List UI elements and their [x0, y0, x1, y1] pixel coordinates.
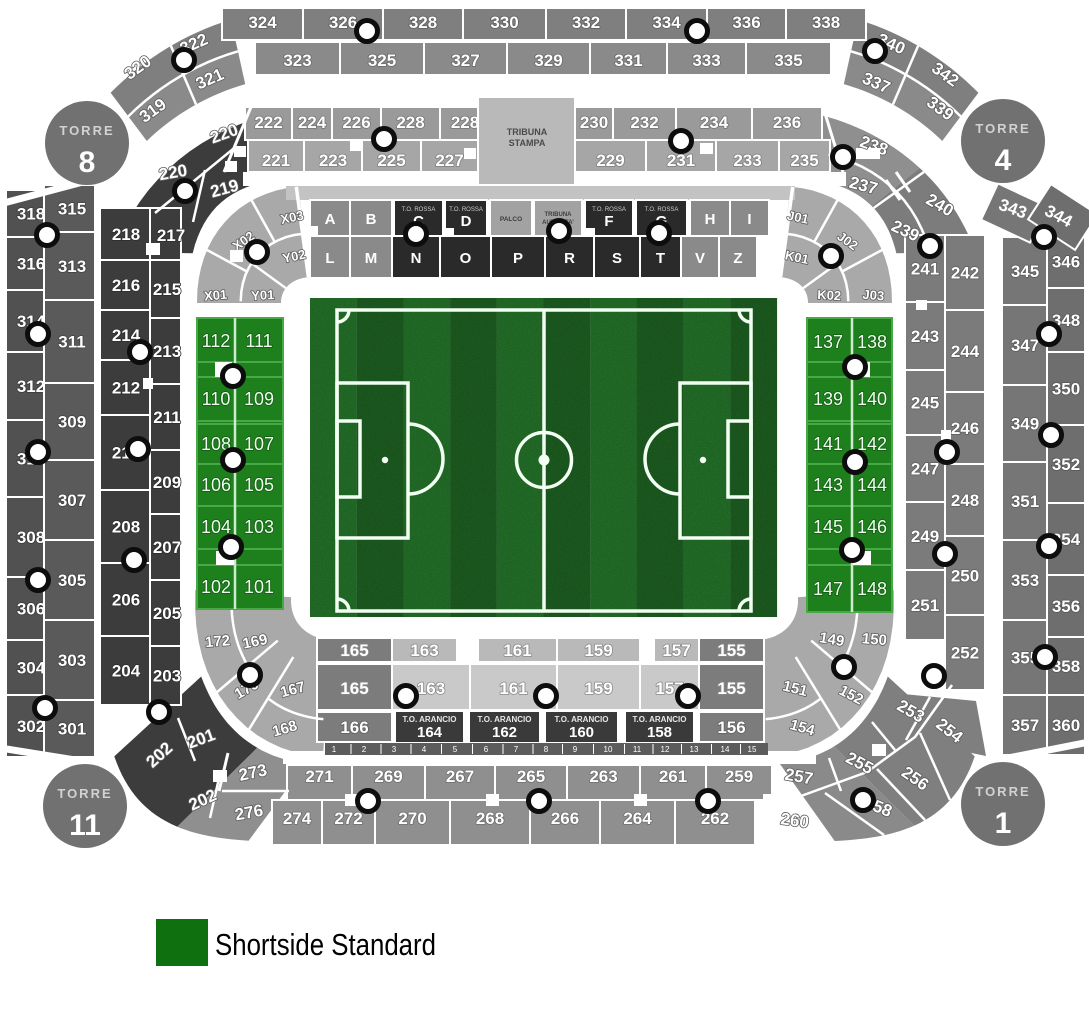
svg-text:269: 269	[374, 767, 402, 786]
svg-text:259: 259	[725, 767, 753, 786]
svg-text:5: 5	[453, 745, 458, 754]
svg-text:260: 260	[779, 809, 810, 832]
svg-text:164: 164	[417, 724, 443, 741]
svg-text:O: O	[460, 250, 472, 267]
svg-text:4: 4	[995, 144, 1012, 177]
svg-text:315: 315	[58, 200, 86, 219]
svg-text:235: 235	[790, 151, 818, 170]
svg-text:161: 161	[503, 641, 531, 660]
svg-text:347: 347	[1011, 336, 1039, 355]
svg-text:105: 105	[244, 475, 274, 495]
svg-text:111: 111	[245, 331, 272, 351]
svg-text:274: 274	[283, 809, 312, 828]
svg-text:103: 103	[244, 517, 274, 537]
svg-text:14: 14	[721, 745, 730, 754]
svg-text:230: 230	[580, 113, 608, 132]
svg-text:345: 345	[1011, 262, 1039, 281]
svg-text:144: 144	[857, 475, 887, 495]
svg-text:223: 223	[319, 151, 347, 170]
svg-text:306: 306	[17, 600, 45, 619]
svg-text:312: 312	[17, 377, 45, 396]
svg-text:243: 243	[911, 327, 939, 346]
svg-text:TRIBUNA: TRIBUNA	[507, 127, 548, 137]
svg-text:308: 308	[17, 528, 45, 547]
svg-text:301: 301	[58, 720, 86, 739]
svg-text:207: 207	[153, 538, 181, 557]
svg-text:251: 251	[911, 596, 939, 615]
svg-text:162: 162	[492, 724, 517, 741]
svg-text:206: 206	[112, 591, 140, 610]
svg-text:270: 270	[398, 809, 426, 828]
svg-text:226: 226	[342, 113, 370, 132]
svg-text:352: 352	[1052, 455, 1080, 474]
svg-text:138: 138	[857, 332, 887, 352]
svg-text:325: 325	[368, 51, 396, 70]
svg-text:9: 9	[573, 745, 578, 754]
svg-text:161: 161	[499, 679, 527, 698]
svg-text:Z: Z	[733, 250, 742, 267]
svg-text:233: 233	[733, 151, 761, 170]
svg-text:1: 1	[995, 807, 1012, 840]
svg-text:221: 221	[262, 151, 290, 170]
svg-text:TRIBUNA: TRIBUNA	[545, 212, 573, 218]
svg-text:215: 215	[153, 280, 181, 299]
svg-text:147: 147	[813, 579, 843, 599]
svg-text:247: 247	[911, 460, 939, 479]
svg-text:150: 150	[861, 630, 887, 649]
svg-text:B: B	[366, 211, 377, 228]
svg-text:244: 244	[951, 342, 980, 361]
svg-text:8: 8	[544, 745, 549, 754]
svg-text:11: 11	[69, 809, 101, 842]
svg-text:261: 261	[659, 767, 687, 786]
svg-text:2: 2	[362, 745, 367, 754]
svg-text:112: 112	[202, 331, 231, 351]
svg-text:248: 248	[951, 491, 979, 510]
svg-text:101: 101	[244, 577, 274, 597]
svg-text:205: 205	[153, 604, 181, 623]
svg-text:T.O. ARANCIO: T.O. ARANCIO	[478, 715, 532, 724]
svg-text:335: 335	[774, 51, 802, 70]
svg-text:350: 350	[1052, 380, 1080, 399]
svg-text:309: 309	[58, 413, 86, 432]
svg-text:V: V	[695, 250, 705, 267]
svg-text:12: 12	[661, 745, 670, 754]
svg-text:204: 204	[112, 662, 141, 681]
svg-text:106: 106	[201, 475, 231, 495]
svg-text:T.O. ARANCIO: T.O. ARANCIO	[555, 715, 609, 724]
svg-text:3: 3	[392, 745, 397, 754]
svg-text:267: 267	[446, 767, 474, 786]
svg-text:F: F	[604, 213, 613, 230]
svg-text:349: 349	[1011, 415, 1039, 434]
svg-text:208: 208	[112, 518, 140, 537]
svg-text:X01: X01	[203, 287, 227, 304]
svg-text:307: 307	[58, 491, 86, 510]
svg-text:360: 360	[1052, 716, 1080, 735]
svg-text:TORRE: TORRE	[59, 123, 114, 138]
svg-text:156: 156	[717, 718, 745, 737]
svg-text:357: 357	[1011, 716, 1039, 735]
svg-text:160: 160	[569, 724, 594, 741]
svg-text:T.O. ARANCIO: T.O. ARANCIO	[633, 715, 687, 724]
svg-text:163: 163	[410, 641, 438, 660]
svg-text:311: 311	[58, 333, 85, 352]
svg-text:13: 13	[690, 745, 699, 754]
svg-text:228: 228	[396, 113, 424, 132]
svg-text:246: 246	[951, 419, 979, 438]
svg-text:252: 252	[951, 644, 979, 663]
svg-text:327: 327	[451, 51, 479, 70]
svg-text:TORRE: TORRE	[975, 784, 1030, 799]
svg-text:236: 236	[773, 113, 801, 132]
svg-text:165: 165	[340, 679, 368, 698]
svg-text:329: 329	[534, 51, 562, 70]
svg-text:172: 172	[204, 632, 230, 651]
svg-text:250: 250	[951, 567, 979, 586]
svg-text:218: 218	[112, 225, 140, 244]
svg-text:159: 159	[584, 679, 612, 698]
svg-text:326: 326	[329, 13, 357, 32]
svg-text:11: 11	[633, 745, 642, 754]
svg-text:328: 328	[409, 13, 437, 32]
svg-text:212: 212	[112, 379, 140, 398]
svg-text:PALCO: PALCO	[500, 216, 522, 223]
svg-text:225: 225	[377, 151, 405, 170]
svg-text:232: 232	[630, 113, 658, 132]
svg-text:216: 216	[112, 276, 140, 295]
svg-text:163: 163	[417, 679, 445, 698]
svg-text:141: 141	[813, 434, 843, 454]
svg-text:330: 330	[490, 13, 518, 32]
svg-text:TORRE: TORRE	[975, 121, 1030, 136]
svg-text:140: 140	[857, 389, 887, 409]
svg-text:143: 143	[813, 475, 843, 495]
svg-text:H: H	[705, 211, 716, 228]
svg-text:217: 217	[157, 226, 185, 245]
svg-text:229: 229	[596, 151, 624, 170]
svg-text:324: 324	[248, 13, 277, 32]
svg-text:N: N	[411, 250, 422, 267]
svg-text:353: 353	[1011, 571, 1039, 590]
svg-text:336: 336	[732, 13, 760, 32]
svg-text:7: 7	[514, 745, 519, 754]
svg-text:249: 249	[911, 527, 939, 546]
svg-text:T: T	[656, 250, 665, 267]
svg-text:109: 109	[244, 389, 274, 409]
svg-text:304: 304	[17, 659, 46, 678]
svg-text:271: 271	[305, 767, 333, 786]
svg-text:228: 228	[451, 113, 479, 132]
svg-text:139: 139	[813, 389, 843, 409]
svg-text:R: R	[564, 250, 575, 267]
svg-text:332: 332	[572, 13, 600, 32]
svg-text:Shortside Standard: Shortside Standard	[215, 927, 436, 962]
svg-text:234: 234	[700, 113, 729, 132]
svg-text:213: 213	[153, 342, 181, 361]
svg-text:145: 145	[813, 517, 843, 537]
svg-text:S: S	[612, 250, 622, 267]
svg-text:241: 241	[911, 260, 939, 279]
svg-text:J03: J03	[862, 287, 885, 304]
svg-text:245: 245	[911, 394, 939, 413]
svg-text:264: 264	[623, 809, 652, 828]
svg-text:209: 209	[153, 473, 181, 492]
svg-text:222: 222	[254, 113, 282, 132]
svg-text:331: 331	[614, 51, 642, 70]
svg-text:265: 265	[517, 767, 545, 786]
svg-text:263: 263	[589, 767, 617, 786]
svg-text:10: 10	[604, 745, 613, 754]
svg-text:104: 104	[201, 517, 231, 537]
svg-text:L: L	[325, 250, 334, 267]
svg-text:TORRE: TORRE	[57, 786, 112, 801]
svg-text:157: 157	[662, 641, 690, 660]
svg-text:102: 102	[201, 577, 231, 597]
svg-text:266: 266	[551, 809, 579, 828]
svg-text:165: 165	[340, 641, 368, 660]
svg-text:107: 107	[244, 434, 274, 454]
svg-text:323: 323	[283, 51, 311, 70]
svg-text:4: 4	[422, 745, 427, 754]
svg-text:T.O. ARANCIO: T.O. ARANCIO	[403, 715, 457, 724]
svg-text:M: M	[365, 250, 378, 267]
svg-text:137: 137	[813, 332, 843, 352]
svg-text:155: 155	[717, 679, 745, 698]
svg-text:268: 268	[476, 809, 504, 828]
svg-text:203: 203	[153, 667, 181, 686]
svg-text:333: 333	[692, 51, 720, 70]
svg-text:338: 338	[812, 13, 840, 32]
svg-text:224: 224	[298, 113, 327, 132]
svg-text:158: 158	[647, 724, 672, 741]
svg-text:8: 8	[79, 146, 96, 179]
svg-text:146: 146	[857, 517, 887, 537]
svg-text:166: 166	[340, 718, 368, 737]
svg-text:316: 316	[17, 255, 45, 274]
svg-text:15: 15	[748, 745, 757, 754]
svg-text:356: 356	[1052, 597, 1080, 616]
svg-text:334: 334	[652, 13, 681, 32]
svg-text:STAMPA: STAMPA	[509, 138, 546, 148]
svg-text:272: 272	[334, 809, 362, 828]
svg-text:227: 227	[435, 151, 463, 170]
svg-text:A: A	[325, 211, 336, 228]
svg-text:110: 110	[202, 389, 231, 409]
svg-text:303: 303	[58, 651, 86, 670]
svg-text:D: D	[461, 213, 472, 230]
svg-text:318: 318	[17, 205, 45, 224]
svg-text:211: 211	[153, 408, 180, 427]
svg-text:P: P	[513, 250, 523, 267]
svg-text:351: 351	[1011, 492, 1039, 511]
svg-text:305: 305	[58, 571, 86, 590]
svg-text:I: I	[747, 211, 751, 228]
svg-text:Y01: Y01	[251, 287, 275, 303]
svg-text:313: 313	[58, 257, 86, 276]
svg-text:159: 159	[584, 641, 612, 660]
svg-text:6: 6	[484, 745, 489, 754]
svg-text:242: 242	[951, 264, 979, 283]
svg-text:K02: K02	[817, 287, 842, 303]
svg-text:1: 1	[332, 745, 337, 754]
svg-text:155: 155	[717, 641, 745, 660]
svg-text:346: 346	[1052, 253, 1080, 272]
svg-text:148: 148	[857, 579, 887, 599]
